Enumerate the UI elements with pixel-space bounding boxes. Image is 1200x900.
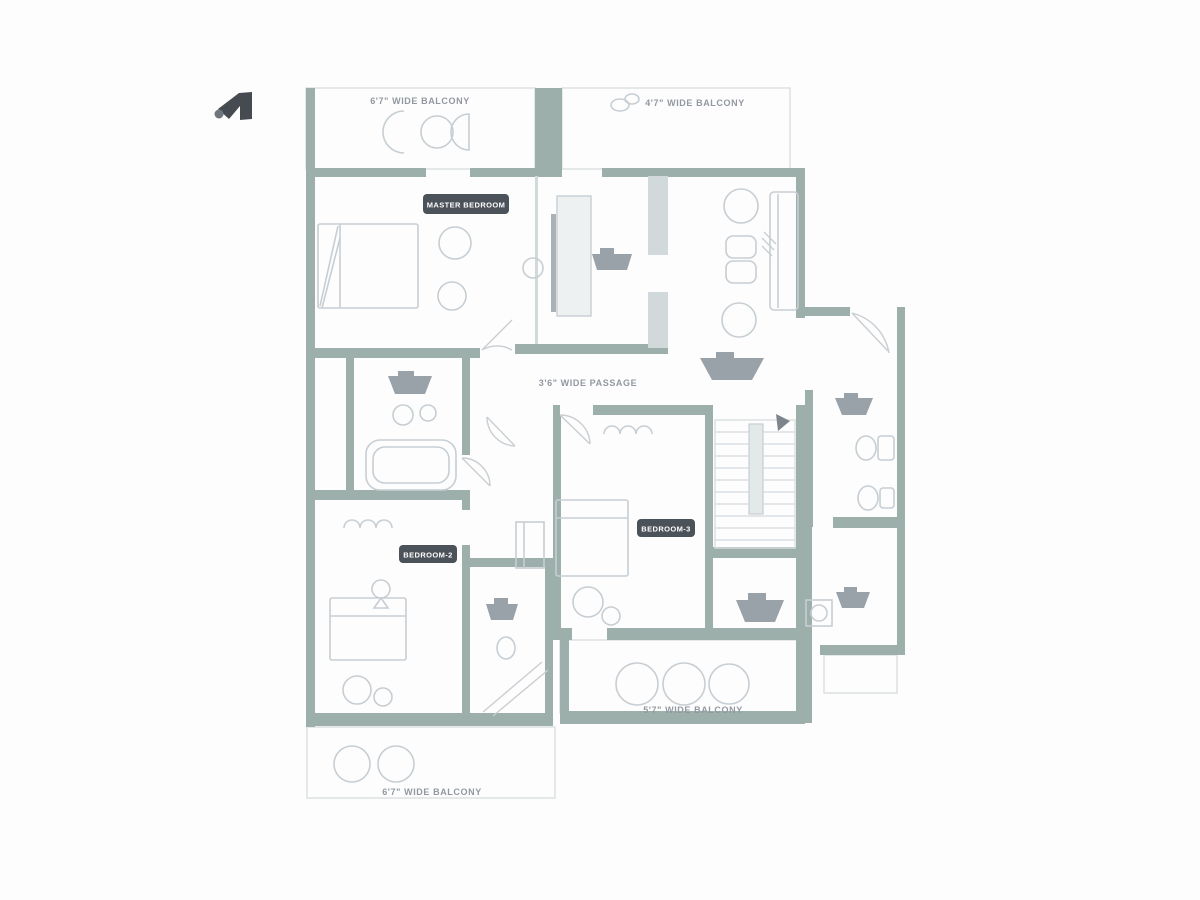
toilet-r-basin [835, 393, 873, 415]
floor-plan-canvas: MASTER BEDROOM BEDROOM-2 BEDROOM-3 6'7" … [0, 0, 1200, 900]
balcony-tr-plant-icon [611, 94, 639, 111]
balcony-bottom-label: 5'7" WIDE BALCONY [643, 705, 743, 715]
bedroom3-chair [573, 587, 603, 617]
wall-toilet-l-right [462, 358, 470, 455]
toilet2-basin [486, 598, 518, 620]
wall-left-outer [306, 88, 315, 727]
toilet-left-bidet [420, 405, 436, 421]
wall-bedroom3-left [553, 415, 561, 628]
master-chair-2 [438, 282, 466, 310]
bedroom2-bed [330, 598, 406, 660]
wall-toilet3-south [713, 628, 805, 640]
wall-top-1 [306, 168, 426, 177]
kitchen-counter-edge [551, 214, 556, 312]
bedroom3-bed [556, 500, 628, 576]
wall-bedroom3-north-a [553, 405, 560, 415]
wall-foyer-top [805, 307, 850, 316]
balcony-bl-planter-1 [334, 746, 370, 782]
toilet3-fixtures [736, 593, 784, 622]
balcony-bl-planter-2 [378, 746, 414, 782]
living-dining-furniture [700, 189, 798, 380]
floor-plan-drawing: MASTER BEDROOM BEDROOM-2 BEDROOM-3 6'7" … [0, 0, 1200, 900]
wall-balcony-b-left [560, 640, 569, 713]
wall-bedroom3-right [705, 405, 713, 640]
balcony-bottom-outline [560, 640, 805, 713]
rightwing-fixtures [806, 393, 894, 626]
kitchen-sink [592, 248, 632, 270]
balcony-top-right-label: 4'7" WIDE BALCONY [645, 98, 745, 108]
wall-bedroom2-right-b [462, 545, 470, 715]
master-side-table [523, 258, 543, 278]
bathtub-inner [373, 447, 449, 483]
door-main-entrance [852, 313, 889, 353]
staircase [715, 414, 795, 548]
door-toilet-left [462, 458, 490, 486]
balcony-top-left-label: 6'7" WIDE BALCONY [370, 96, 470, 106]
bedroom2-label: BEDROOM-2 [403, 551, 452, 560]
wall-bedroom3-south-a [553, 628, 572, 640]
bedroom2-furniture [330, 520, 406, 706]
toilet-r-bidet [858, 486, 878, 510]
staircase-center-rail [749, 424, 763, 514]
wall-master-south [306, 348, 480, 358]
toilet-left-basin [388, 371, 432, 394]
wall-stair-right [796, 405, 805, 555]
wall-bedroom3-south-b [607, 628, 713, 640]
toilet-left-fixtures [366, 371, 456, 490]
door-master-bedroom [482, 320, 512, 350]
brand-logo [215, 92, 253, 120]
toilet-r-wc-tank [878, 436, 894, 460]
utility-ledge-outline [824, 655, 897, 693]
master-bed-throw [320, 226, 340, 308]
dining-wash-basin [700, 352, 764, 380]
wall-duct-divider [346, 358, 354, 490]
dining-chair-top [724, 189, 758, 223]
master-bedroom-furniture [318, 224, 543, 310]
wall-kitchen-living-b [648, 292, 668, 348]
bedroom2-stool [374, 688, 392, 706]
toilet2-fixtures [486, 522, 544, 659]
passage-label: 3'6" WIDE PASSAGE [539, 378, 637, 388]
balcony-bottom-left-label: 6'7" WIDE BALCONY [382, 787, 482, 797]
bedroom3-stool [602, 607, 620, 625]
sofa-hatch [762, 232, 776, 256]
staircase-direction-arrow-icon [776, 414, 790, 431]
utility-washing-machine-drum [811, 605, 827, 621]
wall-top-3 [602, 168, 805, 177]
wall-bedroom2-right-a [462, 500, 470, 510]
wall-toilet2-top [468, 558, 553, 567]
kitchen-fixtures [551, 196, 632, 316]
wall-balcony-b-right [796, 640, 805, 713]
balcony-b-planter-1 [616, 663, 658, 705]
balcony-tl-table [421, 116, 453, 148]
dining-table-2 [726, 261, 756, 283]
dining-chair-bottom [722, 303, 756, 337]
balcony-furniture [334, 94, 749, 782]
utility-basin [836, 587, 870, 608]
wall-main-bottom [306, 713, 553, 726]
toilet2-wc [497, 637, 515, 659]
bedroom3-wardrobe-scallops [604, 426, 652, 434]
sofa [770, 192, 798, 310]
wall-kitchen-south [515, 344, 668, 354]
wall-toilet3-right [796, 557, 805, 640]
brand-logo-dot [215, 110, 224, 119]
balcony-b-planter-2 [663, 663, 705, 705]
toilet-left-wc [393, 405, 413, 425]
wall-rightwing-outer [897, 307, 905, 655]
toilet-r-wc [856, 436, 876, 460]
kitchen-counter [557, 196, 591, 316]
dining-table-1 [726, 236, 756, 258]
master-bedroom-label: MASTER BEDROOM [427, 201, 506, 210]
door-passage-south [487, 417, 515, 446]
wall-bedroom3-north-b [593, 405, 713, 415]
wall-utility-bottom [820, 645, 905, 655]
wall-toilet-r-left [805, 390, 813, 527]
bedroom2-wardrobe-scallops [344, 520, 392, 528]
toilet3-basin [736, 593, 784, 622]
wall-toilet-utility-divider [833, 517, 905, 528]
bedroom2-lamp [372, 580, 390, 608]
balcony-b-planter-3 [709, 664, 749, 704]
toilet-r-bidet-tank [880, 488, 894, 508]
master-chair-1 [439, 227, 471, 259]
bedroom2-chair [343, 676, 371, 704]
wall-bedroom2-north [306, 490, 470, 500]
door-bedroom3 [560, 415, 590, 444]
wall-toilet2-right [545, 558, 553, 715]
door-toilet2-diagonal [483, 662, 548, 716]
wall-balcony-pillar [535, 88, 562, 170]
bedroom3-label: BEDROOM-3 [641, 525, 690, 534]
balcony-tl-curved-seat [383, 111, 404, 153]
wall-kitchen-living-a [648, 176, 668, 255]
